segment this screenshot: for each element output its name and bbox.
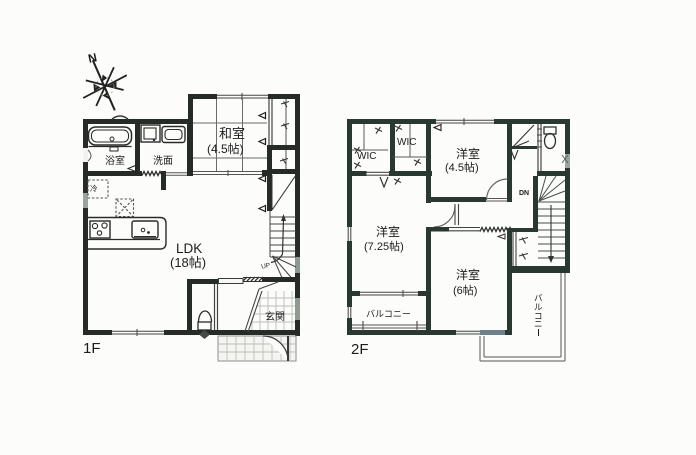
svg-text:洋室: 洋室: [456, 146, 480, 161]
svg-text:洋室: 洋室: [376, 224, 400, 239]
svg-text:玄関: 玄関: [265, 310, 285, 323]
svg-text:和室: 和室: [219, 126, 245, 141]
svg-text:WIC: WIC: [397, 137, 416, 148]
svg-text:DN: DN: [519, 190, 529, 197]
svg-text:(6帖): (6帖): [453, 284, 477, 297]
svg-text:WIC: WIC: [357, 151, 376, 162]
svg-text:(4.5帖): (4.5帖): [445, 161, 479, 174]
svg-text:(18帖): (18帖): [170, 255, 206, 270]
svg-text:洗面: 洗面: [153, 155, 173, 167]
svg-text:LDK: LDK: [176, 241, 202, 256]
svg-text:(4.5帖): (4.5帖): [207, 141, 244, 156]
svg-text:浴室: 浴室: [105, 154, 125, 167]
svg-text:洋室: 洋室: [456, 267, 480, 282]
svg-text:ニ: ニ: [534, 319, 543, 329]
svg-text:冷: 冷: [90, 183, 98, 193]
svg-text:バルコニー: バルコニー: [366, 309, 411, 319]
svg-text:(7.25帖): (7.25帖): [364, 240, 404, 253]
svg-text:1F: 1F: [83, 340, 101, 357]
svg-text:2F: 2F: [351, 341, 369, 358]
